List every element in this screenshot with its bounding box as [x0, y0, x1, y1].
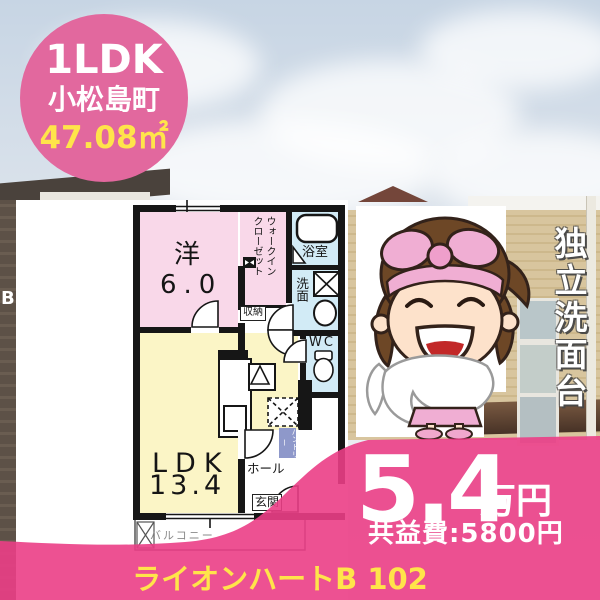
- building-name: ライオンハートB 102: [40, 556, 520, 598]
- flyer-canvas: B パントリー: [0, 0, 600, 600]
- price-fee: 共益費:5800円: [368, 513, 564, 550]
- badge-area: 47.08㎡: [39, 119, 168, 158]
- badge-location: 小松島町: [48, 82, 160, 118]
- badge-layout-type: 1LDK: [45, 38, 163, 82]
- property-badge: 1LDK 小松島町 47.08㎡: [20, 14, 188, 182]
